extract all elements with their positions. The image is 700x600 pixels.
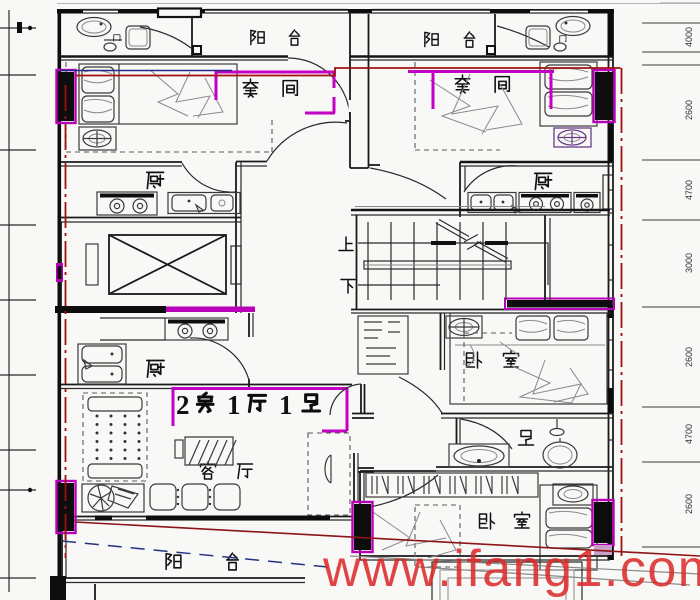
svg-text:2600: 2600 xyxy=(684,347,694,367)
svg-text:2600: 2600 xyxy=(684,100,694,120)
svg-text:www.ifang1.com: www.ifang1.com xyxy=(322,540,700,598)
svg-text:4700: 4700 xyxy=(684,424,694,444)
svg-text:4700: 4700 xyxy=(684,180,694,200)
svg-text:1: 1 xyxy=(227,390,241,420)
svg-text:3000: 3000 xyxy=(684,253,694,273)
svg-text:2: 2 xyxy=(176,390,190,420)
svg-text:2600: 2600 xyxy=(684,494,694,514)
svg-text:1: 1 xyxy=(279,390,293,420)
svg-text:4000: 4000 xyxy=(684,27,694,47)
